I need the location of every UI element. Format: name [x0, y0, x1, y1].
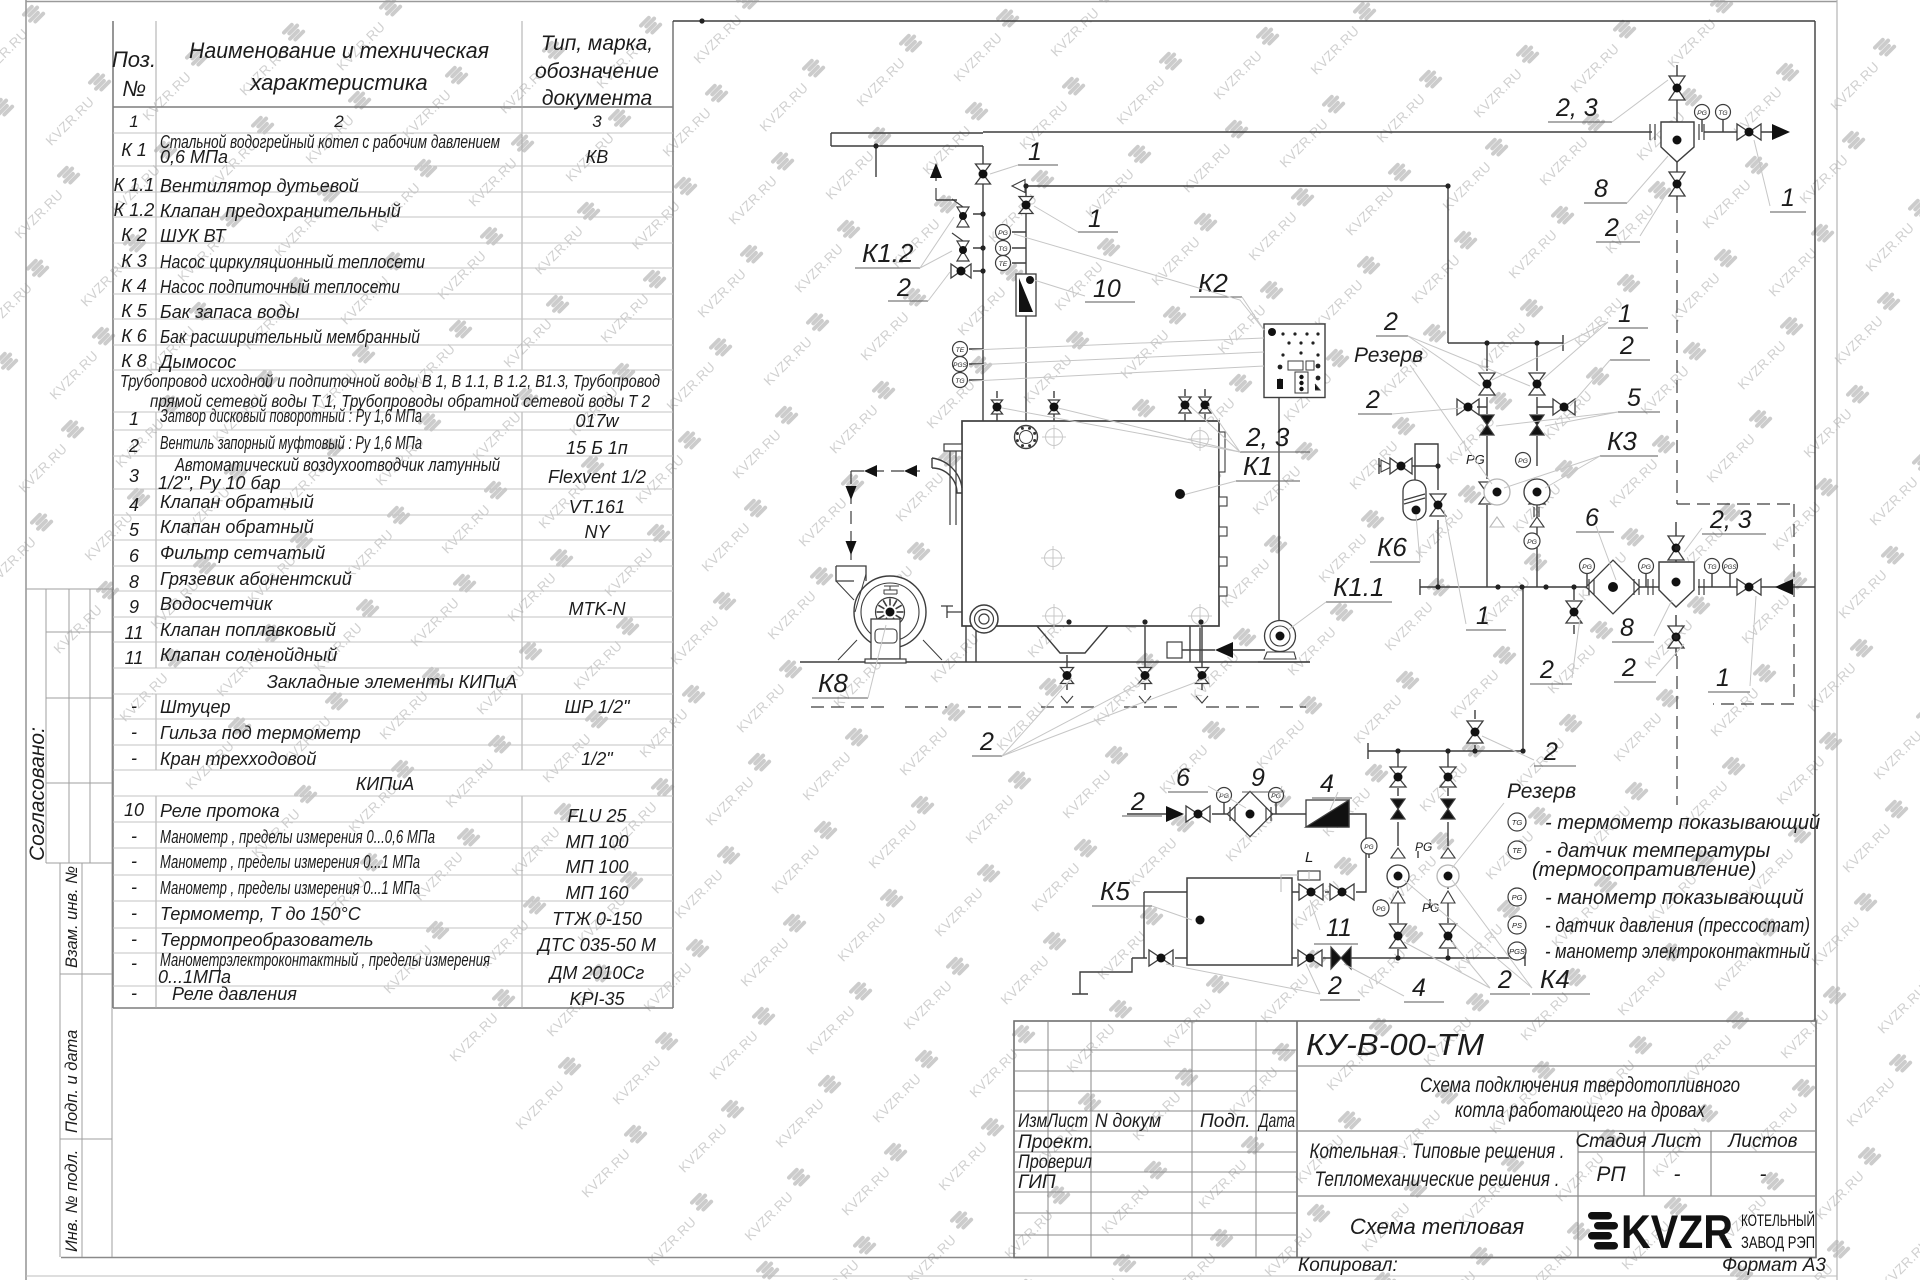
- svg-text:МП 100: МП 100: [565, 857, 628, 877]
- svg-text:котла работающего на дровах: котла работающего на дровах: [1455, 1099, 1706, 1122]
- svg-text:11: 11: [125, 648, 144, 668]
- svg-text:Резерв: Резерв: [1507, 780, 1576, 803]
- svg-text:К 4: К 4: [121, 276, 147, 296]
- svg-text:FLU 25: FLU 25: [567, 806, 627, 826]
- svg-text:-: -: [131, 929, 137, 949]
- svg-text:PG: PG: [1518, 458, 1528, 465]
- svg-text:ТТЖ 0-150: ТТЖ 0-150: [552, 909, 642, 929]
- svg-text:-: -: [131, 748, 137, 768]
- svg-text:2: 2: [1497, 966, 1512, 994]
- svg-text:Штуцер: Штуцер: [160, 697, 230, 717]
- svg-text:-: -: [131, 826, 137, 846]
- svg-text:10: 10: [124, 800, 144, 820]
- svg-text:Листов: Листов: [1726, 1131, 1797, 1152]
- svg-text:9: 9: [1251, 764, 1265, 792]
- svg-text:К 3: К 3: [121, 251, 147, 271]
- svg-text:Подп.: Подп.: [1200, 1111, 1251, 1132]
- svg-text:Манометр , пределы измерения: Манометр , пределы измерения 0...1 МПа: [160, 852, 420, 872]
- svg-text:- термометр показывающий: - термометр показывающий: [1545, 812, 1820, 834]
- svg-text:Взам. инв. №: Взам. инв. №: [63, 866, 81, 968]
- svg-text:К2: К2: [1198, 268, 1228, 298]
- svg-text:PG: PG: [1376, 906, 1385, 913]
- svg-text:1/2", Ру 10 бар: 1/2", Ру 10 бар: [158, 473, 281, 493]
- svg-text:К1: К1: [1243, 451, 1273, 481]
- svg-text:КИПиА: КИПиА: [356, 774, 415, 794]
- svg-text:11: 11: [125, 623, 144, 643]
- svg-text:К 6: К 6: [121, 326, 148, 346]
- svg-text:PG: PG: [1697, 110, 1707, 117]
- svg-text:Наименование и техническая: Наименование и техническая: [189, 38, 489, 63]
- svg-text:TG: TG: [1707, 564, 1716, 571]
- svg-text:15 Б 1п: 15 Б 1п: [566, 438, 628, 458]
- svg-text:10: 10: [1093, 275, 1121, 303]
- svg-text:Гильза под термометр: Гильза под термометр: [160, 723, 361, 743]
- svg-text:ДТС 035-50 М: ДТС 035-50 М: [536, 935, 656, 955]
- svg-text:Тип, марка,: Тип, марка,: [541, 32, 653, 55]
- svg-text:К 1.2: К 1.2: [114, 200, 155, 220]
- svg-text:0,6 МПа: 0,6 МПа: [160, 147, 228, 167]
- svg-text:ИзмЛист: ИзмЛист: [1018, 1111, 1088, 1132]
- svg-text:Вентиль запорный муфтовый : Р: Вентиль запорный муфтовый : Ру 1,6 МПа: [160, 433, 422, 453]
- svg-text:2: 2: [1327, 972, 1342, 1000]
- svg-text:Реле протока: Реле протока: [160, 801, 280, 821]
- svg-text:1: 1: [1088, 205, 1102, 233]
- svg-text:PG: PG: [1512, 893, 1523, 902]
- svg-text:2: 2: [1130, 788, 1145, 816]
- svg-text:К4: К4: [1540, 964, 1570, 994]
- svg-text:2: 2: [1365, 386, 1380, 414]
- svg-text:Поз.: Поз.: [112, 47, 156, 72]
- svg-text:-: -: [1674, 1163, 1681, 1186]
- svg-text:Затвор дисковый поворотный :: Затвор дисковый поворотный : Ру 1,6 МПа: [160, 406, 422, 426]
- svg-text:МП 160: МП 160: [565, 883, 628, 903]
- svg-text:1: 1: [1476, 602, 1490, 630]
- svg-text:-: -: [1760, 1163, 1767, 1186]
- svg-text:Клапан поплавковый: Клапан поплавковый: [160, 620, 336, 640]
- svg-text:2: 2: [1619, 332, 1634, 360]
- svg-text:TG: TG: [1718, 110, 1727, 117]
- svg-text:- манометр электроконтактный: - манометр электроконтактный: [1545, 941, 1810, 963]
- svg-text:Лист: Лист: [1651, 1131, 1702, 1152]
- svg-text:документа: документа: [542, 87, 652, 110]
- svg-text:6: 6: [1176, 764, 1190, 792]
- svg-text:Стадия: Стадия: [1575, 1131, 1646, 1152]
- svg-text:К5: К5: [1100, 876, 1130, 906]
- svg-text:9: 9: [129, 597, 139, 617]
- svg-text:Грязевик абонентский: Грязевик абонентский: [160, 569, 352, 589]
- svg-text:Бак расширительный мембранный: Бак расширительный мембранный: [160, 327, 420, 347]
- svg-text:2: 2: [333, 112, 344, 131]
- svg-text:TG: TG: [955, 378, 964, 385]
- svg-text:2, 3: 2, 3: [1555, 94, 1598, 122]
- svg-text:8: 8: [1620, 614, 1634, 642]
- svg-text:(термосопративление): (термосопративление): [1532, 859, 1756, 881]
- svg-text:Формат А3: Формат А3: [1722, 1255, 1826, 1276]
- svg-text:MTK-N: MTK-N: [569, 599, 627, 619]
- svg-text:Террмопреобразователь: Террмопреобразователь: [160, 930, 373, 950]
- svg-text:KVZR: KVZR: [1621, 1205, 1733, 1258]
- svg-text:KPI-35: KPI-35: [569, 989, 625, 1009]
- svg-text:8: 8: [129, 572, 139, 592]
- svg-text:Реле давления: Реле давления: [172, 984, 297, 1004]
- svg-text:характеристика: характеристика: [249, 70, 427, 95]
- svg-text:К1.1: К1.1: [1333, 572, 1384, 602]
- svg-text:2: 2: [1543, 738, 1558, 766]
- svg-text:2: 2: [896, 274, 911, 302]
- svg-text:Насос циркуляционный теплосети: Насос циркуляционный теплосети: [160, 252, 425, 272]
- svg-text:2, 3: 2, 3: [1709, 506, 1752, 534]
- svg-text:-: -: [131, 903, 137, 923]
- svg-text:TE: TE: [999, 261, 1008, 268]
- svg-text:TG: TG: [1512, 818, 1523, 827]
- svg-text:Инв. № подл.: Инв. № подл.: [63, 1150, 81, 1252]
- svg-text:6: 6: [129, 546, 140, 566]
- svg-text:Согласовано:: Согласовано:: [26, 727, 49, 861]
- svg-text:2: 2: [128, 436, 139, 456]
- svg-text:11: 11: [1326, 914, 1352, 942]
- svg-text:1/2": 1/2": [581, 749, 614, 769]
- svg-text:2: 2: [1621, 654, 1636, 682]
- svg-text:К 5: К 5: [121, 301, 148, 321]
- svg-text:1: 1: [129, 112, 138, 131]
- svg-text:2, 3: 2, 3: [1245, 422, 1290, 452]
- svg-text:3: 3: [129, 466, 139, 486]
- svg-text:TE: TE: [1512, 846, 1523, 855]
- svg-text:N докум: N докум: [1095, 1111, 1161, 1132]
- svg-text:- датчик давления (прессоста: - датчик давления (прессостат): [1545, 915, 1810, 937]
- svg-text:-: -: [131, 851, 137, 871]
- svg-text:2: 2: [1539, 656, 1554, 684]
- svg-text:Flexvent 1/2: Flexvent 1/2: [548, 467, 646, 487]
- svg-text:4: 4: [129, 495, 139, 515]
- svg-text:К6: К6: [1377, 532, 1407, 562]
- svg-text:PGS: PGS: [1509, 947, 1525, 956]
- svg-text:Копировал:: Копировал:: [1298, 1255, 1398, 1276]
- svg-text:Подп. и дата: Подп. и дата: [63, 1030, 81, 1133]
- svg-text:1: 1: [129, 409, 139, 429]
- svg-text:Манометр , пределы измерения: Манометр , пределы измерения 0...0,6 МПа: [160, 827, 435, 847]
- svg-text:Проект.: Проект.: [1018, 1132, 1094, 1153]
- svg-text:-: -: [131, 983, 137, 1003]
- svg-text:PGS: PGS: [953, 362, 967, 369]
- svg-text:TG: TG: [998, 246, 1007, 253]
- svg-text:PG: PG: [1527, 539, 1537, 546]
- svg-text:Клапан обратный: Клапан обратный: [160, 492, 314, 512]
- svg-text:VT.161: VT.161: [569, 497, 625, 517]
- svg-text:PG: PG: [998, 230, 1008, 237]
- svg-text:2: 2: [1383, 308, 1398, 336]
- svg-text:Термометр, Т до 150°С: Термометр, Т до 150°С: [160, 904, 362, 924]
- svg-text:Автоматический воздухоотводчик: Автоматический воздухоотводчик латунный: [174, 455, 500, 475]
- svg-text:обозначение: обозначение: [535, 60, 659, 83]
- svg-text:МП 100: МП 100: [565, 832, 628, 852]
- svg-text:К 2: К 2: [121, 225, 147, 245]
- svg-text:Дымосос: Дымосос: [158, 352, 236, 372]
- svg-text:PG: PG: [1219, 793, 1229, 800]
- svg-text:К1.2: К1.2: [862, 238, 914, 268]
- svg-text:1: 1: [1618, 300, 1632, 328]
- svg-text:017w: 017w: [575, 411, 619, 431]
- svg-text:Резерв: Резерв: [1354, 344, 1423, 367]
- svg-text:Вентилятор дутьевой: Вентилятор дутьевой: [160, 176, 359, 196]
- svg-text:1: 1: [1716, 664, 1730, 692]
- svg-text:КОТЕЛЬНЫЙ: КОТЕЛЬНЫЙ: [1741, 1211, 1815, 1230]
- svg-text:-: -: [131, 953, 137, 973]
- svg-text:Тепломеханические решения .: Тепломеханические решения .: [1315, 1168, 1560, 1191]
- svg-text:2: 2: [1604, 214, 1619, 242]
- svg-text:РП: РП: [1596, 1163, 1626, 1186]
- svg-text:Насос подпиточный теплосети: Насос подпиточный теплосети: [160, 277, 400, 297]
- svg-text:ШР 1/2": ШР 1/2": [565, 697, 632, 717]
- svg-text:К 8: К 8: [121, 351, 147, 371]
- svg-text:Клапан предохранительный: Клапан предохранительный: [160, 201, 401, 221]
- svg-text:5: 5: [129, 520, 140, 540]
- svg-text:Котельная . Типовые решения .: Котельная . Типовые решения .: [1310, 1140, 1565, 1163]
- svg-text:Манометр , пределы измерения: Манометр , пределы измерения 0...1 МПа: [160, 878, 420, 898]
- svg-text:-: -: [131, 877, 137, 897]
- svg-text:К8: К8: [818, 668, 848, 698]
- svg-text:1: 1: [1028, 138, 1042, 166]
- svg-text:Схема подключения твердотоплив: Схема подключения твердотопливного: [1420, 1074, 1740, 1097]
- svg-text:4: 4: [1320, 770, 1334, 798]
- svg-text:КВ: КВ: [586, 147, 609, 167]
- svg-text:- манометр показывающий: - манометр показывающий: [1545, 887, 1804, 909]
- svg-text:К 1: К 1: [121, 140, 147, 160]
- svg-text:L: L: [1305, 849, 1313, 866]
- svg-text:ДМ 2010Сг: ДМ 2010Сг: [548, 963, 645, 983]
- svg-text:TE: TE: [956, 347, 965, 354]
- svg-text:PG: PG: [1641, 564, 1651, 571]
- svg-text:Фильтр сетчатый: Фильтр сетчатый: [160, 543, 325, 563]
- svg-text:Закладные элементы КИПиА: Закладные элементы КИПиА: [267, 672, 517, 692]
- svg-text:Проверил: Проверил: [1018, 1152, 1092, 1173]
- svg-text:Клапан обратный: Клапан обратный: [160, 517, 314, 537]
- svg-text:№: №: [122, 76, 146, 101]
- svg-text:-: -: [131, 722, 137, 742]
- svg-text:PG: PG: [1364, 844, 1373, 851]
- svg-text:К 1.1: К 1.1: [114, 175, 155, 195]
- svg-text:ШУК ВТ: ШУК ВТ: [160, 226, 227, 246]
- svg-text:Бак запаса воды: Бак запаса воды: [160, 302, 299, 322]
- svg-text:Трубопровод исходной и подпито: Трубопровод исходной и подпиточной воды …: [120, 371, 660, 391]
- svg-text:PGS: PGS: [1724, 565, 1737, 571]
- svg-text:PG: PG: [1582, 564, 1592, 571]
- svg-text:8: 8: [1594, 175, 1608, 203]
- svg-text:Кран трехходовой: Кран трехходовой: [160, 749, 316, 769]
- svg-text:5: 5: [1627, 384, 1641, 412]
- svg-text:PS: PS: [1512, 921, 1522, 930]
- svg-text:Клапан соленойдный: Клапан соленойдный: [160, 645, 337, 665]
- svg-text:К3: К3: [1607, 426, 1637, 456]
- svg-text:4: 4: [1412, 974, 1426, 1002]
- svg-text:Дата: Дата: [1258, 1111, 1295, 1132]
- svg-text:ГИП: ГИП: [1018, 1172, 1056, 1193]
- svg-text:2: 2: [979, 728, 994, 756]
- svg-text:Водосчетчик: Водосчетчик: [160, 594, 274, 614]
- svg-text:Схема тепловая: Схема тепловая: [1350, 1214, 1525, 1239]
- svg-text:1: 1: [1781, 184, 1795, 212]
- svg-text:КУ-В-00-ТМ: КУ-В-00-ТМ: [1306, 1027, 1484, 1062]
- svg-text:NY: NY: [584, 522, 611, 542]
- svg-text:ЗАВОД РЭП: ЗАВОД РЭП: [1741, 1233, 1815, 1252]
- svg-text:3: 3: [592, 112, 602, 131]
- svg-text:PG: PG: [1415, 840, 1432, 854]
- svg-text:-: -: [131, 696, 137, 716]
